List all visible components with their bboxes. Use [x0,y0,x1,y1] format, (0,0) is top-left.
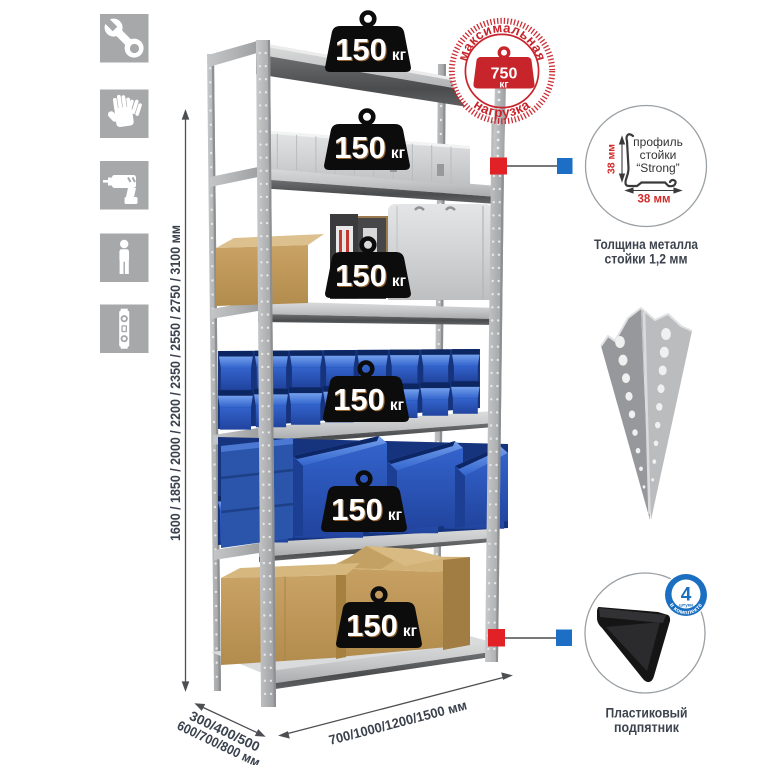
svg-text:150: 150 [335,258,387,293]
svg-text:кг: кг [392,47,407,64]
svg-text:1600 / 1850 / 2000 / 2200 / 23: 1600 / 1850 / 2000 / 2200 / 2350 / 2550 … [168,225,183,541]
svg-text:штуки: штуки [679,603,693,608]
svg-text:кг: кг [499,80,508,91]
svg-text:стойки: стойки [640,148,677,162]
svg-text:кг: кг [388,507,403,524]
svg-text:кг: кг [390,397,405,414]
svg-text:кг: кг [391,145,406,162]
svg-text:150: 150 [335,32,387,67]
svg-text:150: 150 [346,608,398,643]
svg-text:кг: кг [392,273,407,290]
svg-text:38 мм: 38 мм [606,144,618,174]
svg-text:150: 150 [333,382,385,417]
svg-text:профиль: профиль [633,135,683,149]
svg-text:подпятник: подпятник [614,719,680,735]
svg-text:“Strong”: “Strong” [636,161,679,175]
svg-text:150: 150 [334,130,386,165]
svg-text:150: 150 [331,492,383,527]
svg-text:38 мм: 38 мм [637,194,670,206]
svg-text:кг: кг [403,623,418,640]
svg-text:стойки 1,2 мм: стойки 1,2 мм [605,251,688,267]
